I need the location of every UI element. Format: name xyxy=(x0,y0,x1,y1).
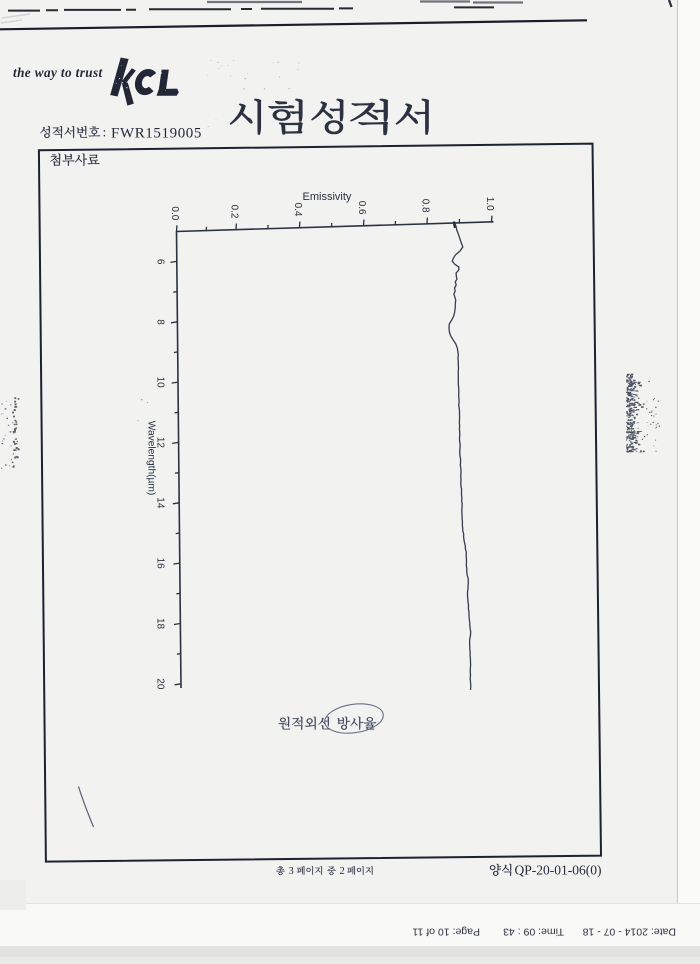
svg-text:20: 20 xyxy=(155,678,166,690)
svg-text::: : xyxy=(103,124,107,139)
svg-text:14: 14 xyxy=(155,497,166,509)
svg-text:QP-20-01-06(0): QP-20-01-06(0) xyxy=(515,863,602,878)
svg-text:8: 8 xyxy=(155,319,166,325)
svg-text:3: 3 xyxy=(289,866,294,877)
svg-text:1.0: 1.0 xyxy=(484,197,495,211)
svg-text:10: 10 xyxy=(155,377,166,389)
svg-text:6: 6 xyxy=(155,259,166,265)
svg-text:18: 18 xyxy=(155,618,166,630)
svg-text:Wavelength(µm): Wavelength(µm) xyxy=(146,421,157,496)
svg-text:0.0: 0.0 xyxy=(169,206,180,220)
svg-text:FWR1519005: FWR1519005 xyxy=(111,125,202,141)
svg-text:0.6: 0.6 xyxy=(356,201,367,215)
svg-text:Time: 09 : 43: Time: 09 : 43 xyxy=(503,926,564,938)
svg-text:the way to trust: the way to trust xyxy=(13,65,103,80)
svg-text:2: 2 xyxy=(340,866,345,877)
svg-text:Emissivity: Emissivity xyxy=(303,191,352,203)
svg-text:0.8: 0.8 xyxy=(419,199,430,213)
svg-text:0.2: 0.2 xyxy=(228,205,239,219)
svg-text:Page: 10 of 11: Page: 10 of 11 xyxy=(412,926,480,938)
svg-text:16: 16 xyxy=(155,558,166,570)
svg-text:0.4: 0.4 xyxy=(292,203,303,217)
svg-text:Date: 2014 - 07 - 18: Date: 2014 - 07 - 18 xyxy=(582,926,676,938)
